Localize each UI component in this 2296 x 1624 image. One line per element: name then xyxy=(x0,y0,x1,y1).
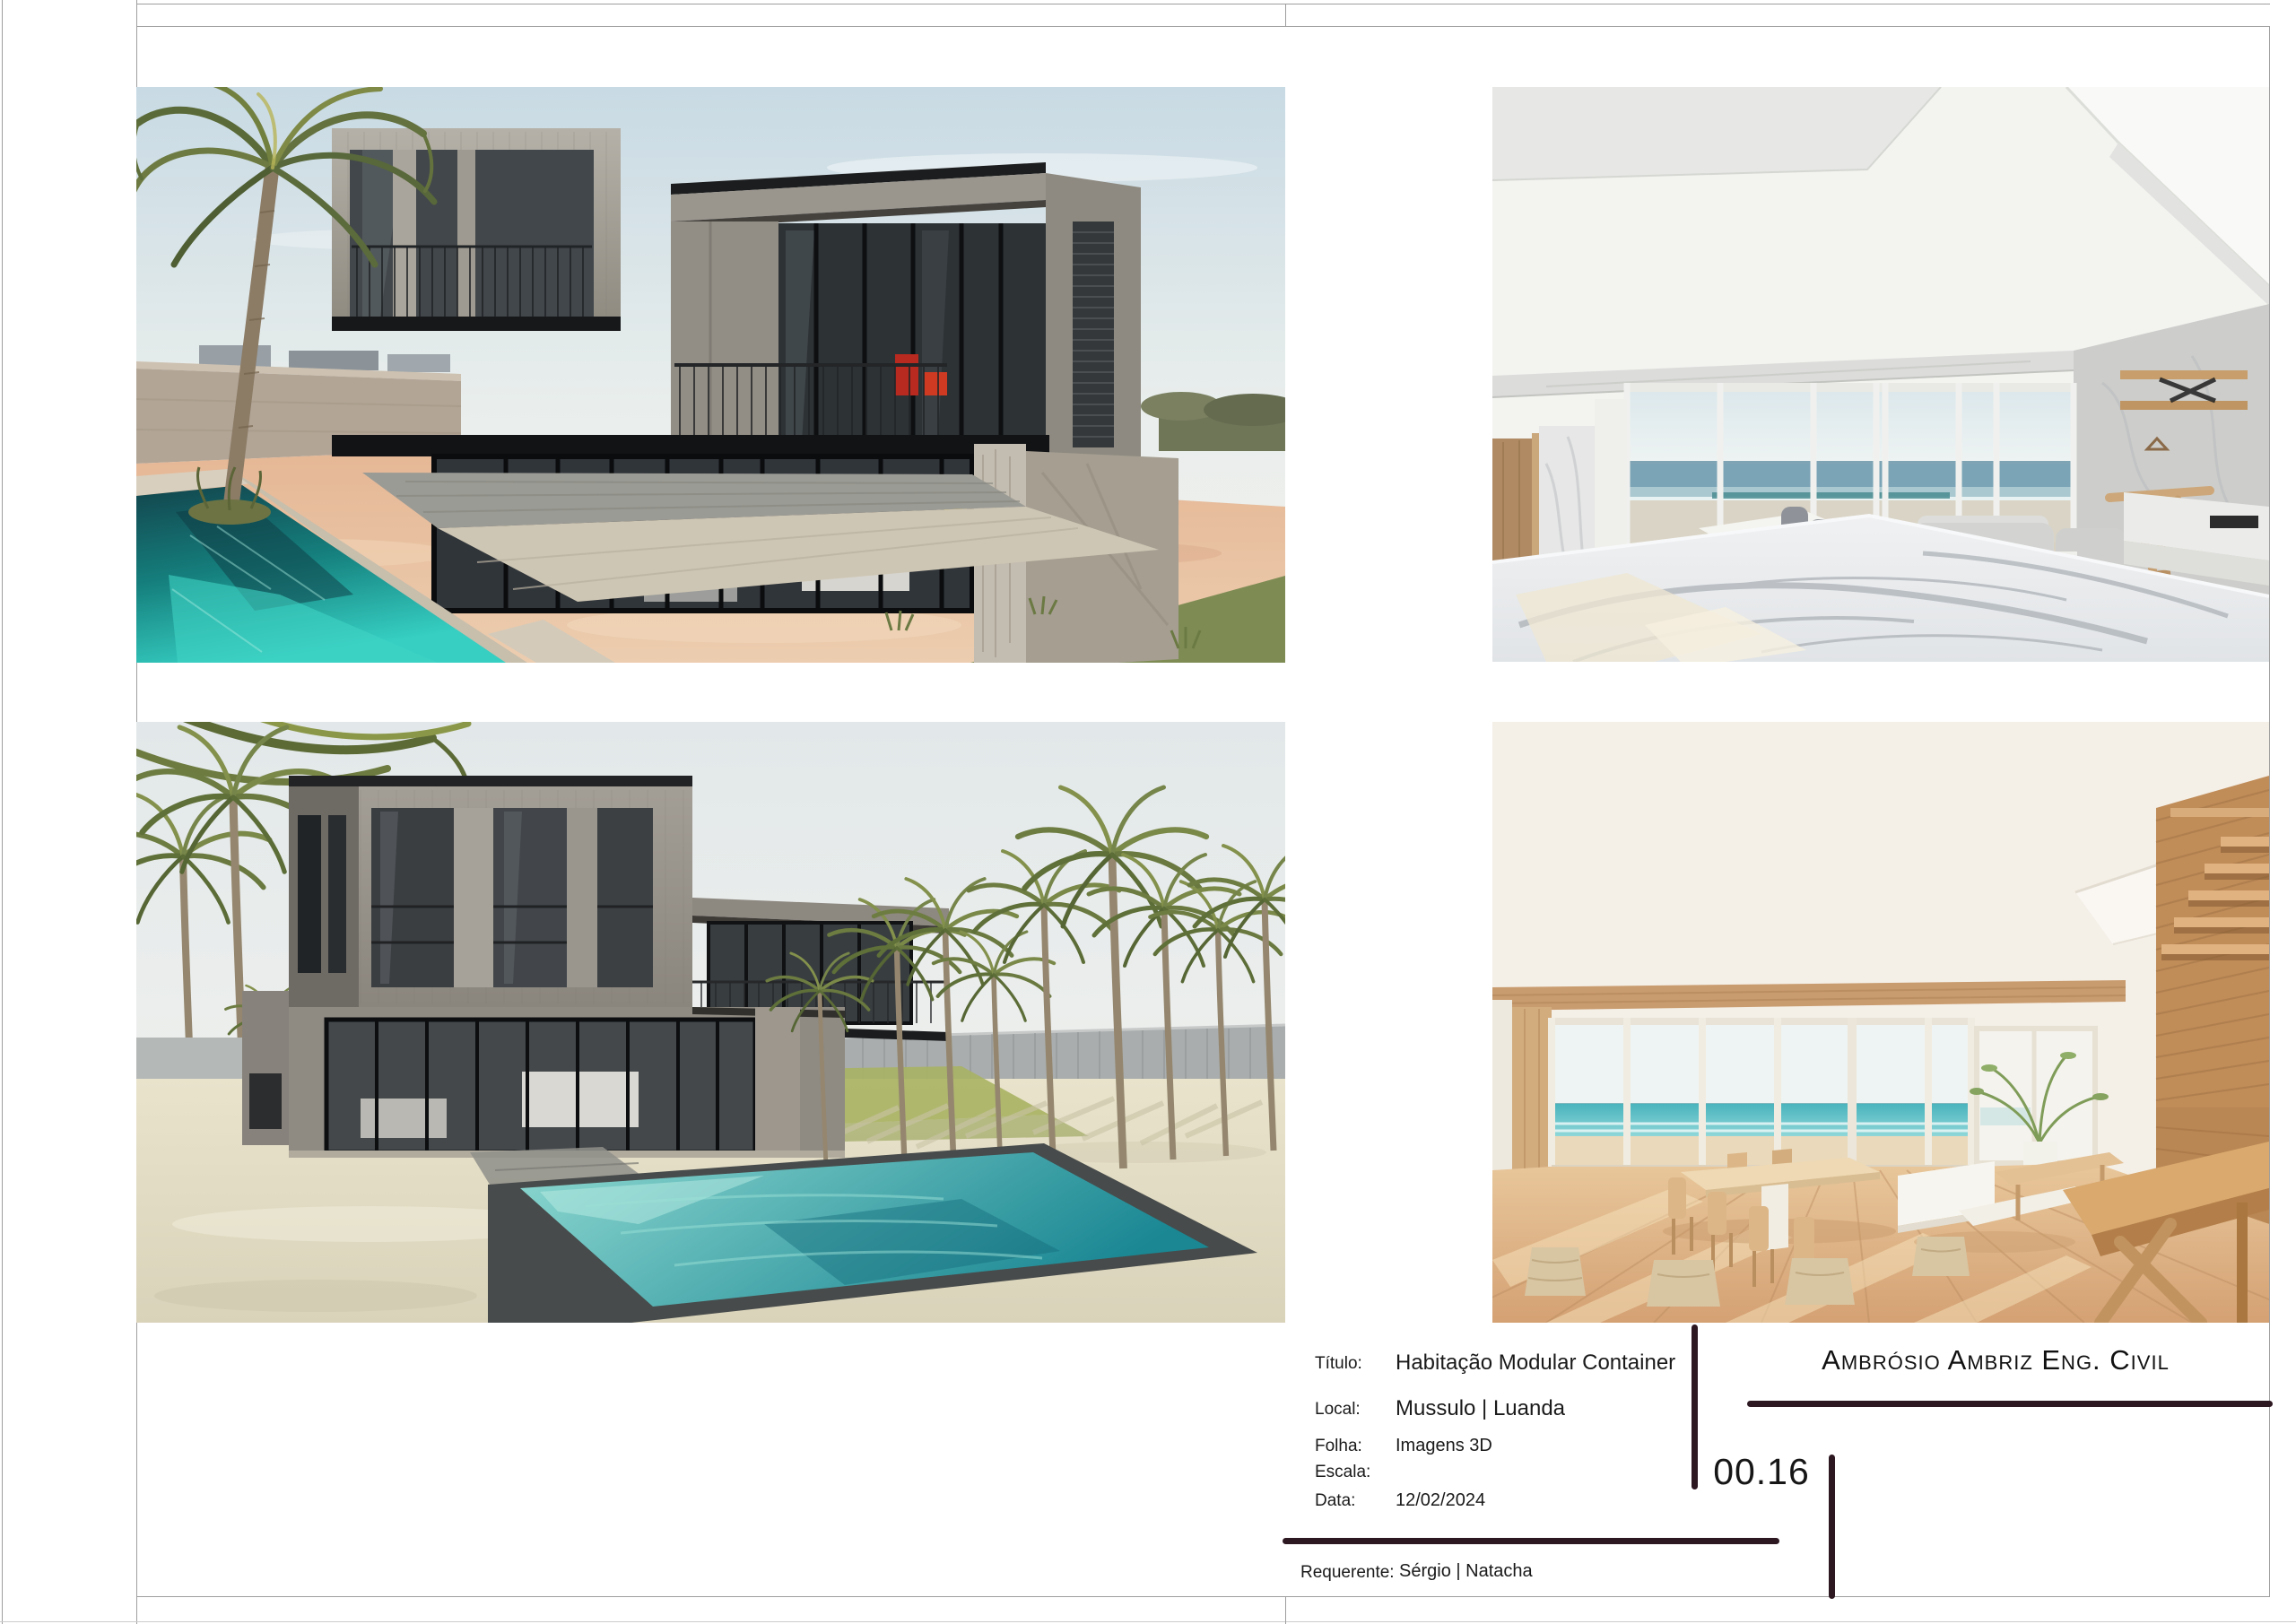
top-line-1 xyxy=(136,4,2270,4)
company-underline xyxy=(1747,1401,2273,1407)
field-value-data: 12/02/2024 xyxy=(1396,1490,1485,1511)
interior-render-1-svg xyxy=(1492,87,2269,662)
field-label-folha: Folha: xyxy=(1315,1437,1362,1456)
field-label-data: Data: xyxy=(1315,1491,1355,1511)
field-label-escala: Escala: xyxy=(1315,1463,1370,1482)
field-value-local: Mussulo | Luanda xyxy=(1396,1396,1565,1421)
titleblock-divider-vertical-1 xyxy=(1692,1324,1698,1489)
left-outer-border xyxy=(2,0,3,1624)
field-value-folha: Imagens 3D xyxy=(1396,1436,1492,1456)
right-border xyxy=(2269,26,2270,1597)
bottom-line-1 xyxy=(136,1596,2270,1597)
render-interior-marble xyxy=(1492,87,2269,662)
field-label-local: Local: xyxy=(1315,1400,1361,1420)
titleblock-divider-vertical-2 xyxy=(1829,1455,1835,1599)
field-label-requerente: Requerente: xyxy=(1300,1563,1395,1583)
bottom-strip-divider xyxy=(1285,1596,1286,1624)
sheet-number: 00.16 xyxy=(1692,1451,1831,1493)
top-line-2 xyxy=(136,26,2270,27)
field-value-requerente: Sérgio | Natacha xyxy=(1399,1561,1533,1582)
field-label-titulo: Título: xyxy=(1315,1354,1362,1374)
bottom-line-2 xyxy=(0,1621,2296,1622)
exterior-render-1-svg xyxy=(136,87,1285,663)
exterior-render-2-svg xyxy=(136,722,1285,1323)
field-value-titulo: Habitação Modular Container xyxy=(1396,1350,1675,1376)
requerente-divider-line xyxy=(1283,1538,1779,1544)
drawing-sheet: Título: Habitação Modular Container Loca… xyxy=(0,0,2296,1624)
render-exterior-palm-row xyxy=(136,722,1285,1323)
top-strip-divider xyxy=(1285,4,1286,27)
company-name: Ambrósio Ambriz Eng. Civil xyxy=(1731,1344,2260,1376)
interior-render-2-svg xyxy=(1492,722,2269,1323)
render-exterior-pool-palm xyxy=(136,87,1285,663)
render-interior-wood xyxy=(1492,722,2269,1323)
